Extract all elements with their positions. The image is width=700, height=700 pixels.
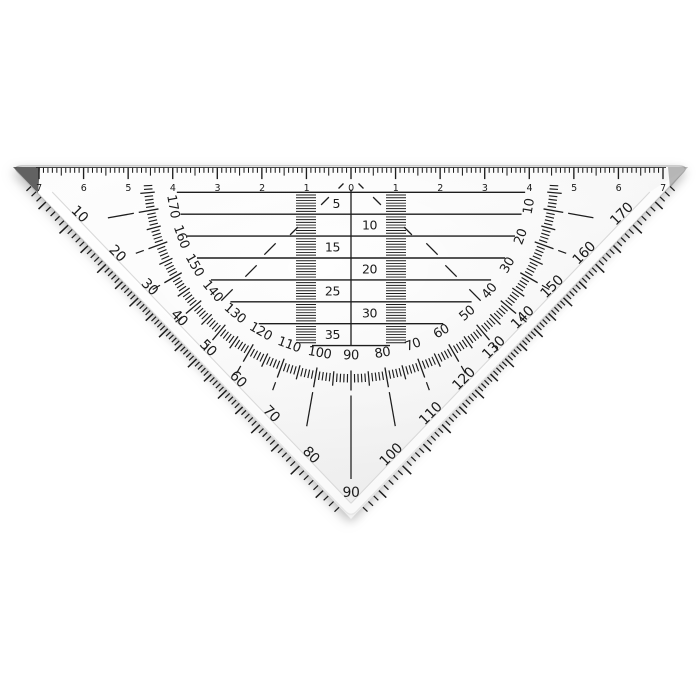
edge-tick	[186, 353, 191, 357]
cm-number: 5	[125, 183, 131, 194]
edge-tick	[546, 316, 551, 320]
edge-tick	[232, 400, 237, 404]
edge-tick	[606, 253, 611, 257]
edge-tick	[37, 197, 42, 201]
edge-tick	[384, 485, 389, 489]
edge-tick	[39, 202, 46, 209]
row-number: 25	[325, 283, 340, 298]
row-number: 15	[325, 240, 340, 255]
edge-tick	[453, 414, 458, 418]
edge-tick	[415, 453, 420, 457]
edge-tick	[551, 310, 556, 314]
edge-tick	[478, 387, 483, 391]
edge-tick	[528, 335, 533, 339]
edge-tick	[621, 238, 626, 242]
outer-degree-number: 90	[342, 485, 359, 501]
edge-tick	[610, 249, 615, 253]
cm-number: 6	[81, 183, 87, 194]
edge-tick	[484, 380, 489, 384]
edge-tick	[245, 414, 250, 418]
edge-tick	[183, 350, 188, 354]
edge-tick	[531, 332, 536, 336]
edge-tick	[411, 457, 416, 461]
edge-tick	[204, 371, 209, 375]
edge-tick	[248, 417, 253, 421]
edge-tick	[146, 311, 151, 315]
edge-tick	[549, 313, 556, 320]
edge-tick	[514, 350, 519, 354]
edge-tick	[456, 410, 461, 414]
edge-tick	[633, 225, 642, 233]
edge-tick	[143, 307, 148, 311]
edge-tick	[502, 362, 507, 366]
edge-tick	[394, 475, 399, 479]
edge-tick	[235, 403, 240, 407]
arc-tick	[550, 189, 558, 190]
edge-tick	[651, 207, 656, 211]
edge-tick	[152, 317, 157, 321]
edge-tick	[335, 507, 340, 511]
edge-tick	[511, 353, 516, 357]
edge-tick	[278, 448, 283, 452]
edge-tick	[573, 288, 578, 292]
edge-tick	[496, 368, 501, 372]
edge-tick	[499, 365, 504, 369]
edge-tick	[81, 246, 88, 253]
edge-tick	[629, 229, 634, 233]
edge-tick	[195, 362, 200, 366]
edge-tick	[557, 304, 562, 308]
edge-tick	[291, 466, 300, 474]
edge-tick	[154, 320, 159, 324]
edge-tick	[508, 356, 513, 360]
photo-background: 7654321012345671020304050607080901001101…	[0, 0, 700, 700]
edge-tick	[537, 326, 542, 330]
edge-tick	[76, 238, 81, 242]
edge-tick	[567, 295, 572, 299]
edge-tick	[266, 436, 271, 440]
edge-tick	[449, 417, 454, 421]
edge-tick	[554, 307, 559, 311]
edge-tick	[316, 491, 323, 498]
arc-tick	[144, 189, 152, 190]
edge-tick	[442, 425, 451, 433]
edge-tick	[137, 301, 142, 305]
edge-tick	[213, 381, 218, 385]
edge-tick	[111, 275, 116, 279]
edge-tick	[180, 347, 185, 351]
edge-tick	[228, 397, 233, 401]
edge-tick	[543, 320, 548, 324]
edge-tick	[172, 338, 177, 342]
edge-tick	[175, 341, 180, 345]
edge-tick	[97, 264, 106, 272]
edge-tick	[592, 268, 597, 272]
edge-tick	[216, 384, 221, 388]
edge-tick	[309, 480, 314, 484]
edge-tick	[251, 425, 260, 433]
edge-tick	[582, 278, 587, 282]
edge-tick	[115, 278, 120, 282]
row-number: 30	[362, 305, 378, 320]
edge-tick	[26, 187, 31, 191]
edge-tick	[613, 246, 620, 253]
edge-tick	[586, 275, 591, 279]
inner-degree-number: 10	[521, 197, 539, 215]
row-number: 10	[362, 218, 378, 233]
edge-tick	[368, 502, 373, 506]
edge-tick	[419, 448, 424, 452]
cm-number: 6	[616, 183, 622, 194]
edge-tick	[108, 272, 113, 276]
edge-tick	[646, 212, 651, 216]
edge-tick	[124, 288, 129, 292]
edge-tick	[431, 436, 436, 440]
edge-tick	[127, 292, 132, 296]
edge-tick	[189, 356, 194, 360]
edge-tick	[642, 216, 647, 220]
edge-tick	[204, 374, 211, 381]
edge-tick	[403, 466, 412, 474]
edge-tick	[487, 377, 492, 381]
edge-tick	[140, 304, 145, 308]
edge-tick	[225, 393, 230, 397]
edge-tick	[87, 250, 92, 254]
edge-tick	[210, 377, 215, 381]
edge-tick	[493, 371, 498, 375]
edge-tick	[105, 268, 110, 272]
edge-tick	[68, 229, 73, 233]
edge-tick	[146, 314, 153, 321]
edge-tick	[427, 440, 432, 444]
edge-tick	[363, 507, 368, 511]
right-tip-shadow	[668, 167, 688, 188]
edge-tick	[299, 471, 304, 475]
edge-tick	[463, 403, 468, 407]
edge-tick	[407, 461, 412, 465]
edge-tick	[115, 282, 122, 289]
edge-tick	[670, 186, 675, 190]
edge-tick	[304, 475, 309, 479]
edge-tick	[379, 491, 386, 498]
edge-tick	[466, 400, 471, 404]
edge-tick	[314, 485, 319, 489]
edge-tick	[490, 374, 497, 381]
cm-number: 5	[571, 183, 577, 194]
edge-tick	[589, 271, 594, 275]
edge-tick	[235, 407, 242, 414]
inner-degree-number: 90	[343, 349, 359, 364]
edge-tick	[91, 253, 96, 257]
edge-tick	[472, 393, 477, 397]
edge-tick	[625, 234, 630, 238]
edge-tick	[94, 257, 99, 261]
edge-tick	[435, 432, 440, 436]
row-number: 20	[362, 261, 378, 276]
edge-tick	[252, 421, 257, 425]
edge-tick	[438, 428, 443, 432]
edge-tick	[579, 282, 586, 289]
edge-tick	[469, 397, 474, 401]
set-square-protractor: 7654321012345671020304050607080901001101…	[0, 0, 700, 700]
edge-tick	[523, 341, 528, 345]
edge-tick	[241, 410, 246, 414]
edge-tick	[599, 261, 604, 265]
edge-tick	[540, 323, 545, 327]
edge-tick	[374, 496, 379, 500]
edge-tick	[576, 285, 581, 289]
edge-tick	[560, 301, 565, 305]
edge-tick	[398, 471, 403, 475]
edge-tick	[98, 261, 103, 265]
edge-tick	[46, 207, 51, 211]
edge-tick	[517, 347, 522, 351]
row-number: 35	[325, 327, 340, 342]
edge-tick	[80, 242, 85, 246]
edge-tick	[121, 285, 126, 289]
edge-tick	[459, 407, 466, 414]
edge-tick	[446, 421, 451, 425]
arc-tick	[365, 374, 366, 382]
row-number: 5	[332, 196, 340, 211]
edge-tick	[270, 440, 275, 444]
edge-tick	[596, 264, 605, 272]
edge-tick	[271, 444, 278, 451]
edge-tick	[665, 192, 670, 196]
cm-number: 4	[526, 183, 532, 194]
edge-tick	[525, 338, 530, 342]
edge-tick	[59, 225, 68, 233]
edge-tick	[660, 197, 665, 201]
edge-tick	[290, 461, 295, 465]
inner-degree-number: 80	[373, 345, 391, 363]
edge-tick	[259, 429, 264, 433]
edge-tick	[51, 212, 56, 216]
edge-tick	[201, 368, 206, 372]
edge-tick	[389, 480, 394, 484]
edge-tick	[198, 365, 203, 369]
edge-tick	[160, 326, 165, 330]
edge-tick	[157, 323, 162, 327]
edge-tick	[423, 444, 430, 451]
edge-tick	[324, 496, 329, 500]
edge-tick	[617, 242, 622, 246]
edge-tick	[169, 335, 174, 339]
edge-tick	[32, 192, 37, 196]
edge-tick	[59, 221, 64, 225]
cm-number: 7	[36, 183, 42, 194]
edge-tick	[329, 502, 334, 506]
edge-tick	[219, 387, 224, 391]
edge-tick	[166, 332, 171, 336]
edge-tick	[131, 295, 136, 299]
cm-number: 4	[170, 183, 176, 194]
edge-tick	[603, 257, 608, 261]
edge-tick	[55, 216, 60, 220]
edge-tick	[72, 234, 77, 238]
arc-tick	[337, 374, 338, 382]
edge-tick	[263, 432, 268, 436]
edge-tick	[637, 221, 642, 225]
edge-tick	[282, 453, 287, 457]
edge-tick	[570, 291, 575, 295]
edge-tick	[481, 384, 486, 388]
edge-tick	[655, 202, 662, 209]
edge-tick	[286, 457, 291, 461]
